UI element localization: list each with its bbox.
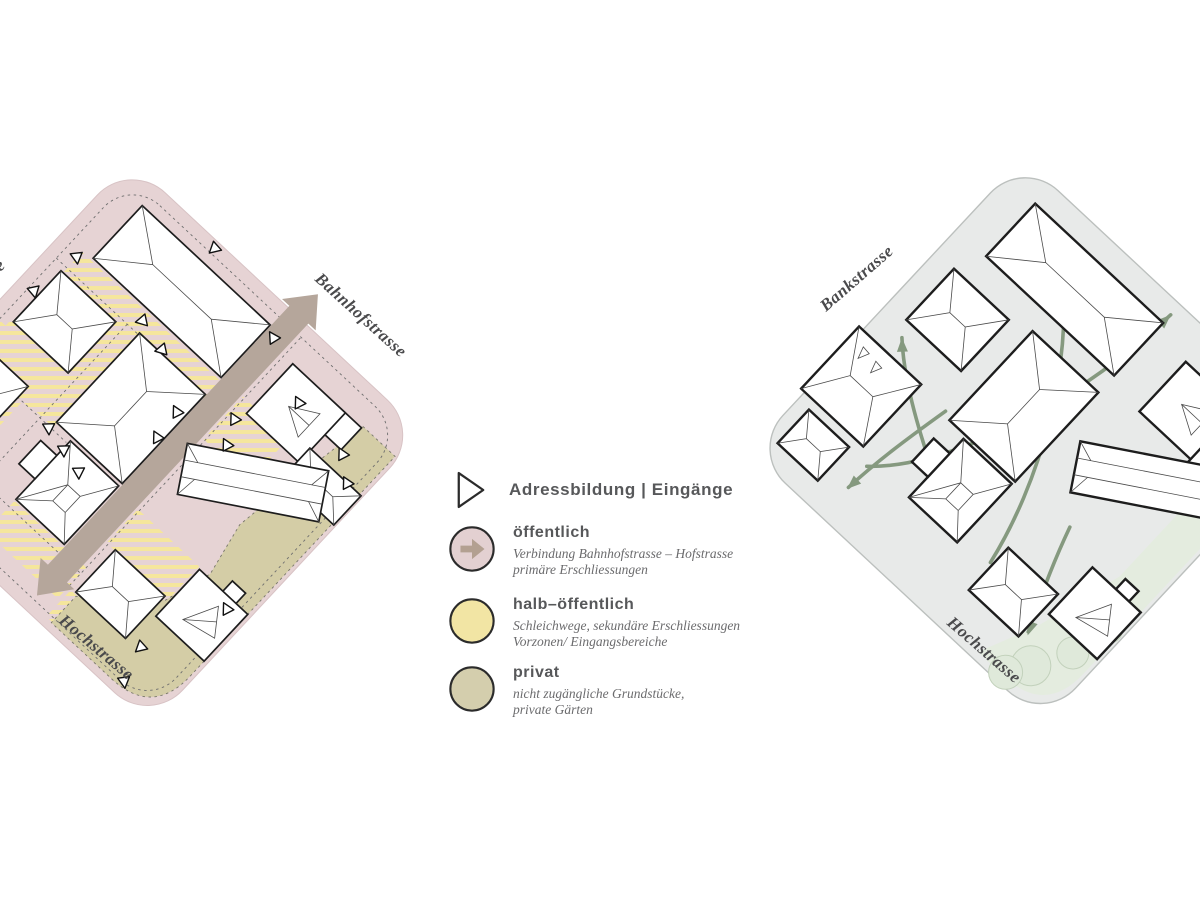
legend-private-title: privat bbox=[513, 664, 684, 682]
legend-address-label: Adressbildung | Eingänge bbox=[509, 480, 733, 500]
legend-semipublic-title: halb–öffentlich bbox=[513, 596, 740, 614]
street-label-hofstrasse-partial: e bbox=[0, 255, 9, 275]
left-site-plan: Bahnhofstrasse Hochstrasse e bbox=[0, 135, 443, 726]
private-zone-icon bbox=[447, 664, 497, 714]
semipublic-zone-icon bbox=[447, 596, 497, 646]
street-label-bankstrasse: Bankstrasse bbox=[815, 241, 897, 315]
legend-public-title: öffentlich bbox=[513, 524, 733, 542]
legend-item-public: öffentlich Verbindung Bahnhofstrasse – H… bbox=[447, 524, 733, 579]
right-site-plan: Bankstrasse Hochstrasse bbox=[743, 155, 1200, 727]
diagram-canvas: Bahnhofstrasse Hochstrasse e bbox=[0, 0, 1200, 900]
legend-public-desc2: primäre Erschliessungen bbox=[513, 562, 733, 578]
legend: Adressbildung | Eingänge öffentlich Verb… bbox=[447, 468, 767, 738]
legend-private-desc2: private Gärten bbox=[513, 702, 684, 718]
site-plans-drawing: Bahnhofstrasse Hochstrasse e bbox=[0, 0, 1200, 900]
public-zone-icon bbox=[447, 524, 497, 574]
legend-private-desc1: nicht zugängliche Grundstücke, bbox=[513, 686, 684, 702]
legend-semipublic-desc1: Schleichwege, sekundäre Erschliessungen bbox=[513, 618, 740, 634]
legend-item-private: privat nicht zugängliche Grundstücke, pr… bbox=[447, 664, 684, 719]
legend-semipublic-desc2: Vorzonen/ Eingangsbereiche bbox=[513, 634, 740, 650]
legend-item-semipublic: halb–öffentlich Schleichwege, sekundäre … bbox=[447, 596, 740, 651]
entrance-triangle-icon bbox=[455, 470, 487, 510]
legend-address-row: Adressbildung | Eingänge bbox=[455, 470, 733, 510]
legend-public-desc1: Verbindung Bahnhofstrasse – Hofstrasse bbox=[513, 546, 733, 562]
